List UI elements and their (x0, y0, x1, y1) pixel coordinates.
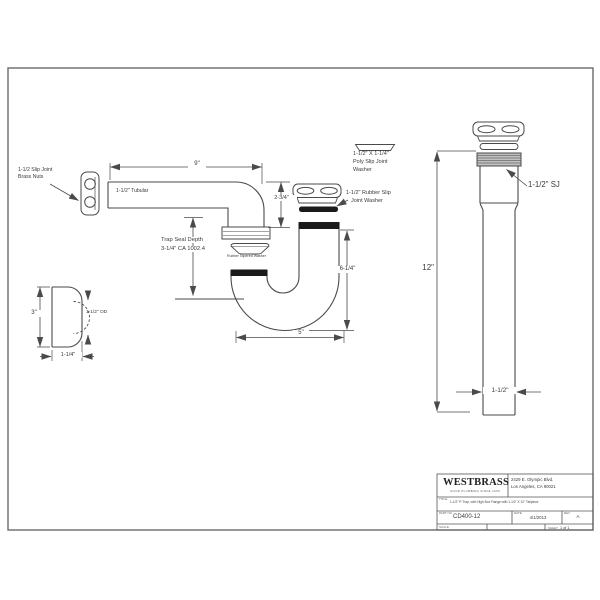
tapered-washer (231, 244, 269, 255)
slip-nut-exploded (293, 184, 341, 203)
rev-value: A (566, 515, 590, 520)
dim-6-1-4in: 6-1/4" (332, 266, 363, 273)
sheet-value: 1 of 1 (560, 526, 570, 530)
date-value: 4/1/2013 (518, 516, 558, 521)
brass-nuts-label-line2: Brass Nuts (18, 175, 43, 181)
tailpiece-washer (480, 144, 518, 150)
title-field-label: TITLE: (439, 498, 448, 501)
brass-nuts-label-line1: 1-1/2 Slip Joint (18, 168, 52, 174)
tubular-label: 1-1/2" Tubular (116, 189, 148, 195)
technical-drawing-page: 1-1/2 Slip Joint Brass Nuts 1-1/2" Tubul… (0, 0, 600, 600)
rubber-washer-seated-right (299, 222, 340, 229)
dim-5in: 5" (293, 330, 309, 337)
rubber-slip-joint-washer (299, 207, 338, 213)
tailpiece-assembly (473, 122, 524, 415)
tailpiece-tube (480, 166, 518, 415)
poly-washer-label-line1: 1-1/2" X 1-1/4" (353, 151, 389, 157)
part-no-value: CD400-12 (453, 514, 480, 521)
rubber-washer-seated-left (231, 270, 268, 277)
poly-slip-joint-washer (356, 145, 395, 151)
drawing-canvas (0, 0, 600, 600)
poly-washer-label-line2: Poly Slip Joint (353, 159, 388, 165)
company-tagline: GOOD PLUMBING SINCE 1935 (443, 490, 507, 493)
title-field-value: 1-1/2" P-Trap, with High Box Flange with… (450, 501, 538, 505)
j-bend-trap (231, 222, 340, 331)
dim-1-1-2in: 1-1/2" (483, 387, 517, 394)
rubber-washer-label-line2: Joint Washer (351, 198, 383, 204)
sheet-border (8, 68, 593, 530)
dim-12in: 12" (415, 264, 434, 273)
part-no-label: PART NO. (439, 512, 453, 515)
flange-profile-detail (52, 287, 90, 347)
company-address-line1: 2429 E. Olympic Blvd. (511, 478, 553, 483)
sj-label: 1-1/2" SJ (528, 181, 560, 190)
dimension-lines (37, 151, 541, 412)
dim-1-1-4in: 1-1/4" (54, 352, 82, 358)
sheet-label: SHEET (548, 527, 558, 530)
dim-9in: 9" (188, 161, 206, 168)
wall-flange-nuts (81, 172, 99, 215)
poly-washer-label-line3: Washer (353, 167, 372, 173)
trap-seal-label-line1: Trap Seal Depth (160, 237, 204, 243)
dim-2-3-4in: 2-3/4" (266, 195, 297, 201)
rubber-washer-label-line1: 1-1/2" Rubber Slip (346, 190, 391, 196)
company-address-line2: Los Angeles, CA 90021 (511, 485, 556, 490)
scale-label: SCALE (439, 526, 449, 529)
od-label: 1-1/2" OD (86, 310, 107, 315)
trap-seal-label-line2: 3-1/4" CA 1002.4 (160, 246, 206, 252)
dim-3in: 3" (27, 310, 41, 317)
company-logo: WESTBRASS (443, 477, 507, 489)
tailpiece-threads (477, 153, 521, 166)
tapered-washer-label: Rubber Tapered Washer (227, 255, 266, 259)
tailpiece-slip-nut (473, 122, 524, 136)
